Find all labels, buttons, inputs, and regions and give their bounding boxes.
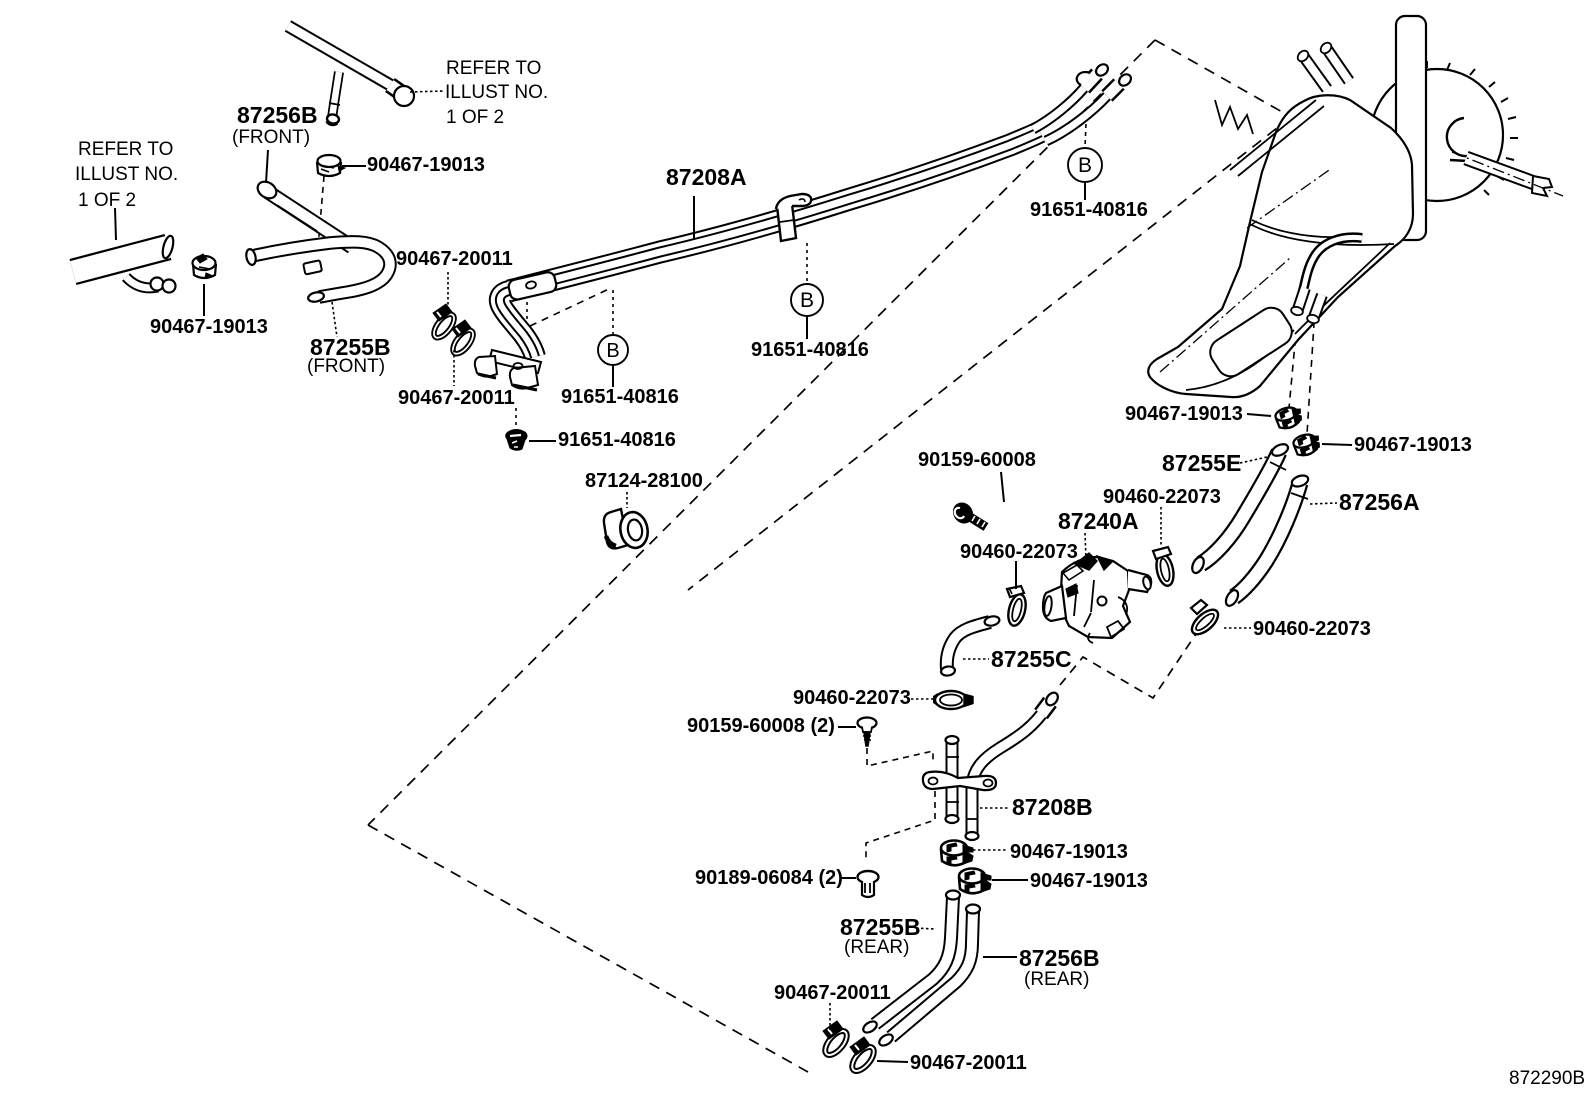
svg-text:1 OF 2: 1 OF 2 — [78, 190, 136, 211]
svg-text:90460-22073: 90460-22073 — [1253, 618, 1371, 640]
svg-text:90460-22073: 90460-22073 — [793, 687, 911, 709]
svg-text:90467-20011: 90467-20011 — [398, 387, 515, 409]
svg-text:ILLUST NO.: ILLUST NO. — [445, 82, 548, 103]
svg-text:90467-20011: 90467-20011 — [396, 248, 513, 270]
svg-text:87124-28100: 87124-28100 — [585, 470, 703, 492]
svg-text:90460-22073: 90460-22073 — [960, 541, 1078, 563]
svg-text:91651-40816: 91651-40816 — [1030, 199, 1148, 221]
svg-text:90467-20011: 90467-20011 — [910, 1052, 1027, 1074]
svg-text:91651-40816: 91651-40816 — [561, 386, 679, 408]
svg-text:91651-40816: 91651-40816 — [558, 429, 676, 451]
svg-text:1 OF 2: 1 OF 2 — [446, 107, 504, 128]
svg-text:87240A: 87240A — [1058, 508, 1139, 534]
svg-text:87256B: 87256B — [1019, 945, 1100, 971]
svg-text:90467-19013: 90467-19013 — [150, 316, 268, 338]
svg-text:87255C: 87255C — [991, 646, 1072, 672]
svg-text:90159-60008: 90159-60008 — [918, 449, 1036, 471]
svg-text:90189-06084 (2): 90189-06084 (2) — [695, 867, 843, 889]
svg-text:90467-20011: 90467-20011 — [774, 982, 891, 1004]
svg-text:872290B: 872290B — [1509, 1068, 1585, 1089]
svg-text:90467-19013: 90467-19013 — [1010, 841, 1128, 863]
svg-text:87208A: 87208A — [666, 164, 747, 190]
svg-text:90467-19013: 90467-19013 — [1125, 403, 1243, 425]
svg-text:(REAR): (REAR) — [844, 937, 909, 958]
svg-text:(FRONT): (FRONT) — [307, 356, 385, 377]
svg-text:90467-19013: 90467-19013 — [367, 154, 485, 176]
svg-text:87256A: 87256A — [1339, 489, 1420, 515]
svg-text:(FRONT): (FRONT) — [232, 127, 310, 148]
svg-text:90159-60008 (2): 90159-60008 (2) — [687, 715, 835, 737]
svg-text:87256B: 87256B — [237, 102, 318, 128]
svg-text:90467-19013: 90467-19013 — [1354, 434, 1472, 456]
svg-text:ILLUST NO.: ILLUST NO. — [75, 164, 178, 185]
svg-text:B: B — [1078, 154, 1092, 177]
svg-text:B: B — [606, 340, 619, 362]
svg-text:B: B — [800, 289, 814, 312]
svg-text:90467-19013: 90467-19013 — [1030, 870, 1148, 892]
svg-text:90460-22073: 90460-22073 — [1103, 486, 1221, 508]
svg-text:87255E: 87255E — [1162, 450, 1241, 476]
svg-text:(REAR): (REAR) — [1024, 969, 1089, 990]
svg-text:87208B: 87208B — [1012, 794, 1093, 820]
svg-text:REFER TO: REFER TO — [78, 139, 173, 160]
svg-text:REFER TO: REFER TO — [446, 58, 541, 79]
svg-text:91651-40816: 91651-40816 — [751, 339, 869, 361]
